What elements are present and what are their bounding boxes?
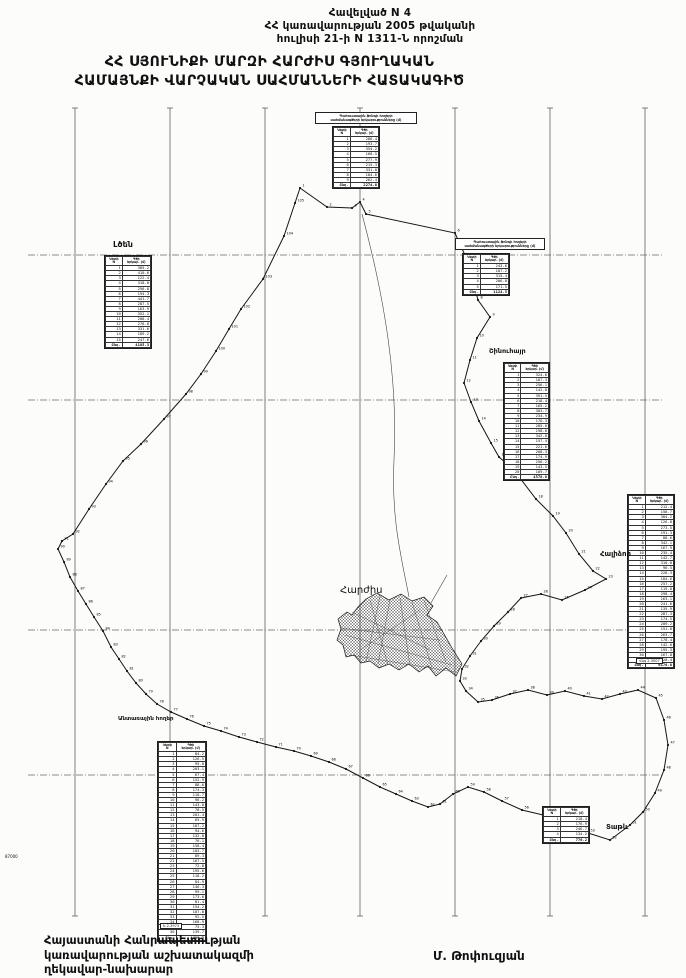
boundary-point-number: 50 [646,808,650,812]
boundary-point [490,442,492,444]
map-label-sheet-code-2: Վկգ 2-3007 [636,658,663,664]
boundary-point-number: 45 [659,694,663,698]
boundary-point [299,187,301,189]
boundary-point [454,232,456,234]
boundary-point-number: 28 [511,608,515,612]
boundary-point-number: 10 [480,334,484,338]
boundary-point [427,806,429,808]
boundary-point-number: 49 [658,789,662,793]
boundary-point [275,746,277,748]
boundary-point-number: 73 [242,733,246,737]
boundary-point [461,668,463,670]
road-line [431,575,447,603]
boundary-point-number: 51 [633,821,637,825]
boundary-point-number: 44 [641,686,645,690]
boundary-point-number: 39 [550,691,554,695]
boundary-point [203,725,205,727]
boundary-point [77,590,79,592]
boundary-point-number: 36 [495,696,499,700]
boundary-point-number: 82 [122,655,126,659]
boundary-point-number: 13 [474,398,478,402]
boundary-point [452,793,454,795]
boundary-point [228,328,230,330]
boundary-point [93,616,95,618]
boundary-point-number: 90 [61,545,65,549]
map-label-halidzor: Հալիձոր [600,550,631,558]
boundary-point-number: 93 [92,505,96,509]
boundary-point [478,420,480,422]
boundary-point [85,603,87,605]
boundary-point [546,694,548,696]
map-label-ltsen: Լծեն [113,240,133,249]
boundary-point [140,443,142,445]
boundary-point-number: 21 [582,550,586,554]
boundary-point [156,703,158,705]
boundary-point-number: 60 [456,790,460,794]
settlement-outline [337,593,462,676]
boundary-point-number: 25 [565,596,569,600]
table-caption-reserve-top: Պահուստային ֆոնդի հողերիսահմանագծերի երկ… [315,112,417,124]
boundary-point [469,655,471,657]
boundary-point [186,718,188,720]
boundary-point [520,597,522,599]
boundary-point-number: 74 [224,727,228,731]
boundary-point-number: 69 [314,752,318,756]
signatory-name: Մ. Թոփուզյան [433,949,525,963]
boundary-point [118,658,120,660]
boundary-point-number: 9 [493,313,495,317]
boundary-point [170,711,172,713]
boundary-point-number: 19 [556,512,560,516]
boundary-point-number: 95 [126,457,130,461]
boundary-point [552,515,554,517]
boundary-table-tatev-small: Կետի NԳծի երկար. (մ)1218.42176.93246.741… [542,806,590,844]
boundary-point-number: 97 [167,415,171,419]
boundary-point-number: 46 [667,716,671,720]
boundary-point [379,786,381,788]
boundary-point [592,570,594,572]
boundary-point-number: 20 [569,529,573,533]
boundary-point-number: 68 [332,758,336,762]
boundary-point-number: 24 [588,586,592,590]
boundary-point-number: 72 [260,738,264,742]
boundary-point [126,670,128,672]
boundary-point-number: 2 [330,203,332,207]
map-label-shinuhayr: Շինուհայր [489,347,526,355]
boundary-point-number: 66 [366,774,370,778]
boundary-point-number: 59 [471,783,475,787]
boundary-point [463,382,465,384]
boundary-point [583,695,585,697]
boundary-point-number: 4 [363,198,365,202]
boundary-point-number: 43 [623,690,627,694]
boundary-point [498,456,500,458]
table-caption-reserve-topright: Պահուստային ֆոնդի հողերիսահմանագծերի երկ… [455,238,545,250]
boundary-point [256,741,258,743]
boundary-point [476,337,478,339]
boundary-point [345,768,347,770]
boundary-point [362,777,364,779]
boundary-point-number: 70 [297,747,301,751]
boundary-point [163,418,165,420]
boundary-point-number: 89 [67,558,71,562]
boundary-point-number: 56 [525,806,529,810]
boundary-point [365,213,367,215]
boundary-point-number: 30 [484,637,488,641]
boundary-point-number: 105 [298,199,304,203]
boundary-point-number: 100 [219,347,225,351]
boundary-table-forest: Կետի NԳծի երկար. (մ)184.22126.5395.84203… [157,741,207,942]
boundary-point-number: 27 [524,594,528,598]
boundary-point-number: 52 [613,836,617,840]
boundary-point-number: 33 [463,677,467,681]
boundary-point-number: 71 [279,743,283,747]
boundary-point [470,401,472,403]
boundary-point [326,206,328,208]
boundary-point-number: 101 [232,325,238,329]
boundary-point-number: 63 [415,797,419,801]
boundary-point-number: 14 [482,417,486,421]
signature-line: ղեկավար-նախարար [44,962,254,977]
boundary-point-number: 47 [671,741,675,745]
boundary-point-number: 80 [139,679,143,683]
boundary-point [561,599,563,601]
boundary-point [501,800,503,802]
settlement-parcels-harjis [337,593,462,676]
boundary-point [477,299,479,301]
boundary-point-number: 67 [349,765,353,769]
boundary-table-ltsen: Կետի NԳծի երկար. (մ)1385.22410.63122.443… [104,255,152,349]
boundary-point [395,793,397,795]
boundary-point [509,693,511,695]
boundary-point-number: 37 [513,690,517,694]
boundary-point-number: 34 [469,687,473,691]
boundary-point [489,316,491,318]
boundary-point [69,576,71,578]
boundary-point-number: 22 [596,567,600,571]
boundary-point-number: 64 [399,790,403,794]
signature-block: Հայաստանի Հանրապետության կառավարության ա… [44,933,254,977]
boundary-point-number: 78 [160,700,164,704]
boundary-table-shinuhayr: Կետի NԳծի երկար. (մ)1324.62187.33256.141… [503,362,550,481]
boundary-point-number: 53 [591,829,595,833]
boundary-point [480,640,482,642]
boundary-point [477,701,479,703]
boundary-point [105,483,107,485]
boundary-point [459,680,461,682]
boundary-point [465,690,467,692]
boundary-point-number: 18 [539,495,543,499]
boundary-point-number: 91 [65,537,69,541]
boundary-point-number: 87 [81,587,85,591]
boundary-point-number: 48 [667,766,671,770]
boundary-table-halidzor: Կետի NԳծի երկար. (մ)1212.42158.73304.241… [627,494,675,669]
boundary-point-number: 85 [97,613,101,617]
boundary-point-number: 98 [189,390,193,394]
boundary-point-number: 40 [568,687,572,691]
boundary-point-number: 79 [149,690,153,694]
boundary-point [293,750,295,752]
boundary-point-number: 83 [114,643,118,647]
boundary-point [238,736,240,738]
boundary-point-number: 81 [130,667,134,671]
signature-line: կառավարության աշխատակազմի [44,948,254,963]
map-label-harjis: Հարժիս [340,585,383,596]
boundary-point-number: 41 [587,692,591,696]
boundary-point [283,235,285,237]
boundary-point-number: 6 [458,229,460,233]
boundary-point [135,682,137,684]
boundary-point-number: 62 [431,803,435,807]
boundary-point [521,809,523,811]
boundary-point [61,540,63,542]
boundary-point [540,593,542,595]
boundary-point-number: 102 [244,305,250,309]
boundary-point [57,548,59,550]
boundary-point-number: 92 [76,530,80,534]
boundary-point [328,761,330,763]
boundary-point-number: 76 [190,715,194,719]
boundary-point [469,359,471,361]
boundary-point-number: 11 [473,356,477,360]
boundary-point-number: 1 [303,184,305,188]
boundary-point [439,803,441,805]
boundary-point-number: 84 [106,627,110,631]
boundary-point [220,730,222,732]
signature-line: Հայաստանի Հանրապետության [44,933,254,948]
boundary-point [122,460,124,462]
boundary-point [564,690,566,692]
boundary-point [584,589,586,591]
boundary-point [578,553,580,555]
coordinate-grid [28,108,662,916]
boundary-point [663,719,665,721]
boundary-table-reserve-topright: Կետի NԳծի երկար. (մ)1243.62187.23315.442… [462,253,510,296]
internal-road-lines [362,214,447,603]
boundary-point-number: 23 [609,575,613,579]
boundary-point [609,839,611,841]
boundary-point [637,689,639,691]
boundary-point-number: 96 [144,440,148,444]
boundary-point [493,625,495,627]
boundary-point [200,373,202,375]
boundary-point [310,755,312,757]
boundary-point [605,578,607,580]
road-line [362,214,409,597]
boundary-point [294,202,296,204]
boundary-point-number: 29 [497,622,501,626]
boundary-point-number: 57 [505,797,509,801]
boundary-point-number: 61 [443,800,447,804]
boundary-point [629,824,631,826]
boundary-point-number: 12 [467,379,471,383]
boundary-table-reserve-top: Կետի NԳծի երկար. (մ)1286.42193.73354.241… [332,126,380,189]
boundary-point [110,646,112,648]
boundary-point-number: 99 [204,370,208,374]
boundary-point [145,693,147,695]
boundary-point [565,532,567,534]
boundary-point-number: 5 [369,210,371,214]
boundary-point [527,689,529,691]
boundary-point [215,350,217,352]
boundary-point [601,698,603,700]
boundary-point-number: 32 [465,665,469,669]
boundary-point-number: 8 [481,296,483,300]
boundary-point-number: 75 [207,722,211,726]
boundary-point-number: 103 [266,275,272,279]
boundary-point [88,508,90,510]
map-label-forest-lands: Անտառային հողեր [118,716,173,722]
boundary-point-number: 35 [481,698,485,702]
boundary-point-number: 42 [605,695,609,699]
boundary-point [467,786,469,788]
boundary-point [351,207,353,209]
boundary-point [411,800,413,802]
boundary-point [642,811,644,813]
boundary-point [507,611,509,613]
boundary-point [654,792,656,794]
boundary-point [63,561,65,563]
boundary-point [663,769,665,771]
boundary-point-number: 94 [109,480,113,484]
boundary-point [102,630,104,632]
boundary-point [72,533,74,535]
boundary-point-number: 38 [531,686,535,690]
boundary-point [667,744,669,746]
boundary-point-number: 88 [73,573,77,577]
boundary-point [619,693,621,695]
boundary-point [655,697,657,699]
boundary-point-number: 77 [174,708,178,712]
boundary-point-number: 58 [487,788,491,792]
boundary-point [185,393,187,395]
map-label-coord-87000: 87000 [5,854,18,859]
boundary-point-number: 3 [355,204,357,208]
boundary-point [535,498,537,500]
boundary-point-number: 15 [494,439,498,443]
boundary-point-number: 31 [473,652,477,656]
boundary-point [483,791,485,793]
boundary-point-number: 86 [89,600,93,604]
map-label-sheet-code-1: Ե 2-3973 [160,923,182,929]
boundary-point [491,699,493,701]
boundary-point [262,278,264,280]
boundary-point-number: 104 [287,232,293,236]
boundary-point [240,308,242,310]
boundary-point-number: 26 [544,590,548,594]
boundary-point-number: 65 [383,783,387,787]
map-label-tatev: Տաթև [606,823,628,831]
boundary-point [359,201,361,203]
